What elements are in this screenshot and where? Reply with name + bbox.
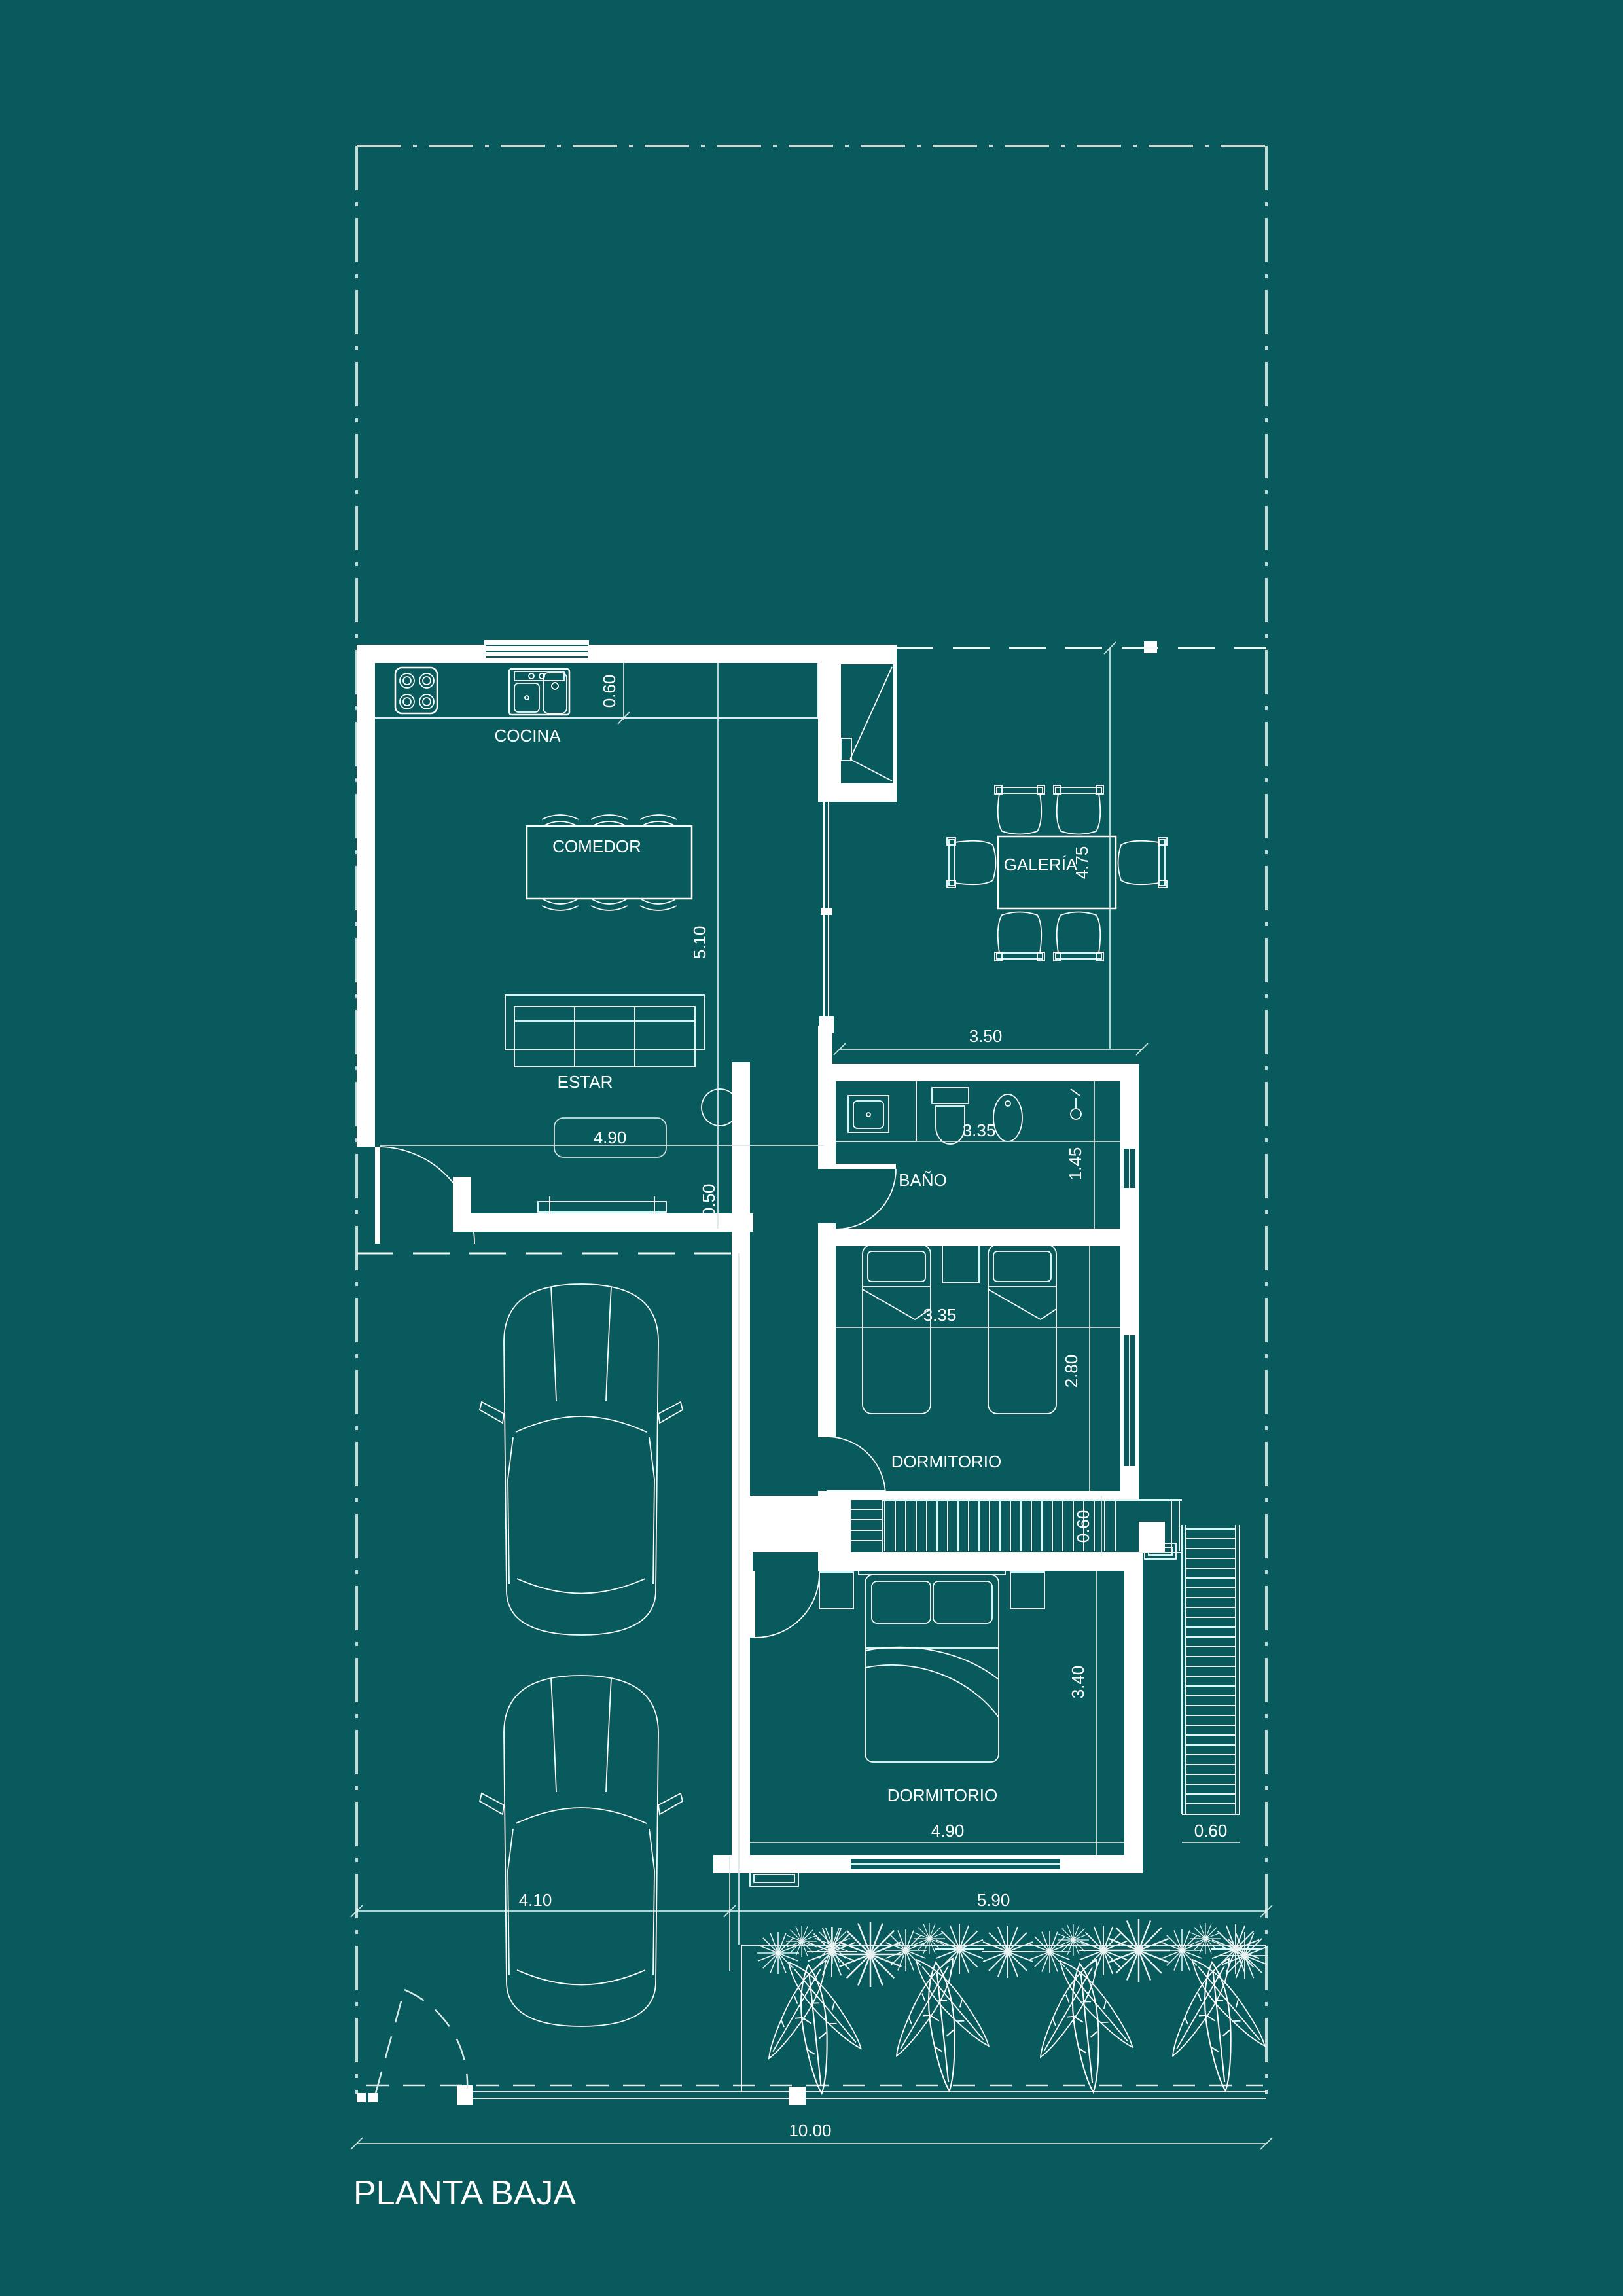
front-fence xyxy=(357,1990,1266,2105)
dim-closet-depth: 0.50 xyxy=(699,1184,719,1217)
dim-bedroom1-depth: 2.80 xyxy=(1061,1355,1081,1388)
dim-bath-width: 3.35 xyxy=(963,1121,996,1140)
label-bano: BAÑO xyxy=(899,1170,947,1190)
deck-hatch xyxy=(851,1500,1182,1552)
dim-kitchen-counter: 0.60 xyxy=(599,675,619,708)
label-estar: ESTAR xyxy=(558,1072,613,1092)
kitchen-fixtures xyxy=(375,663,818,718)
dim-garden-front: 5.90 xyxy=(977,1890,1010,1910)
dim-bedroom1-width: 3.35 xyxy=(923,1305,957,1325)
bedroom1-furniture xyxy=(863,1245,1056,1414)
dim-bath-depth: 1.45 xyxy=(1065,1147,1085,1181)
dim-gallery-width: 3.50 xyxy=(969,1026,1003,1046)
label-dormitorio-2: DORMITORIO xyxy=(887,1785,998,1805)
dim-living-width: 4.90 xyxy=(594,1128,627,1147)
dim-stair-width: 0.60 xyxy=(1194,1821,1228,1840)
bedroom2-furniture xyxy=(819,1566,1044,1762)
walls xyxy=(357,640,1165,1873)
label-comedor: COMEDOR xyxy=(552,836,641,856)
label-galeria: GALERÍA xyxy=(1004,855,1078,874)
car-2 xyxy=(480,1676,683,2026)
label-cocina: COCINA xyxy=(494,726,561,745)
dining-furniture xyxy=(527,815,692,910)
carport xyxy=(480,1253,1266,2092)
plan-texts: COCINA 0.60 COMEDOR 5.10 GALERÍA 4.75 3.… xyxy=(353,675,1227,2212)
living-furniture xyxy=(505,995,738,1126)
dim-bedroom2-width: 4.90 xyxy=(931,1821,965,1840)
dim-living-length: 5.10 xyxy=(690,926,709,960)
dim-garage-front: 4.10 xyxy=(519,1890,552,1910)
garden-plants xyxy=(757,1919,1273,2095)
dim-deck-depth: 0.60 xyxy=(1073,1510,1093,1543)
dim-bedroom2-depth: 3.40 xyxy=(1068,1666,1088,1699)
page-title: PLANTA BAJA xyxy=(353,2174,576,2212)
car-1 xyxy=(480,1284,683,1635)
dim-gallery-length: 4.75 xyxy=(1072,846,1092,880)
floor-plan: COCINA 0.60 COMEDOR 5.10 GALERÍA 4.75 3.… xyxy=(0,0,1623,2296)
dim-lot-width: 10.00 xyxy=(789,2121,831,2140)
bathroom-fixtures xyxy=(836,1081,1081,1144)
exterior-stair xyxy=(1182,1525,1240,1814)
label-dormitorio-1: DORMITORIO xyxy=(891,1452,1002,1471)
